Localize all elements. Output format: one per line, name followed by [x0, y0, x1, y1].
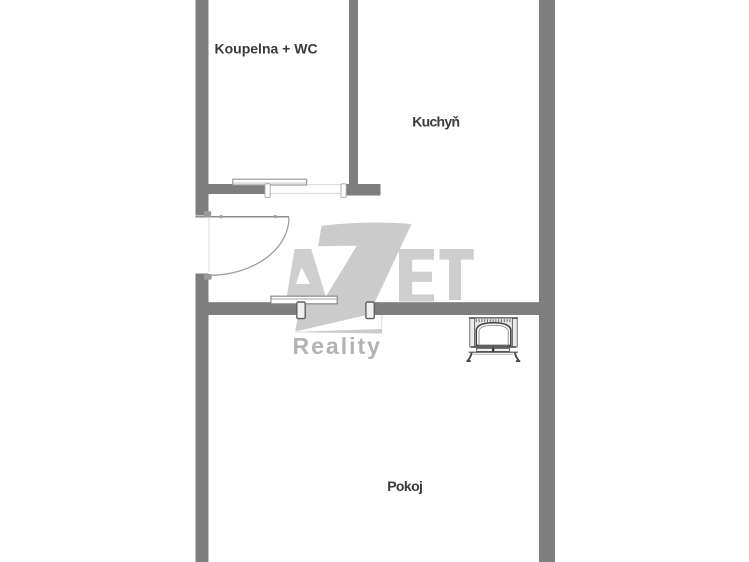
svg-text:Koupelna + WC: Koupelna + WC [215, 41, 318, 57]
svg-text:Reality: Reality [293, 333, 382, 359]
svg-text:Kuchyň: Kuchyň [412, 114, 459, 130]
svg-text:Pokoj: Pokoj [387, 478, 422, 494]
